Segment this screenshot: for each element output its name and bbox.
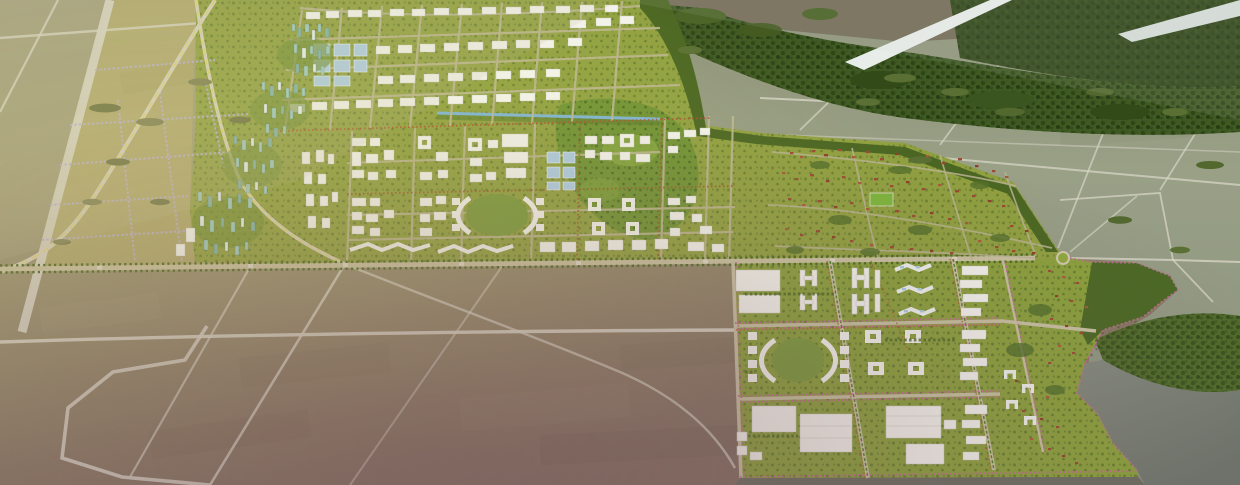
masterplan-aerial-render (0, 0, 1240, 485)
masterplan-svg (0, 0, 1240, 485)
atmosphere (0, 0, 1240, 485)
